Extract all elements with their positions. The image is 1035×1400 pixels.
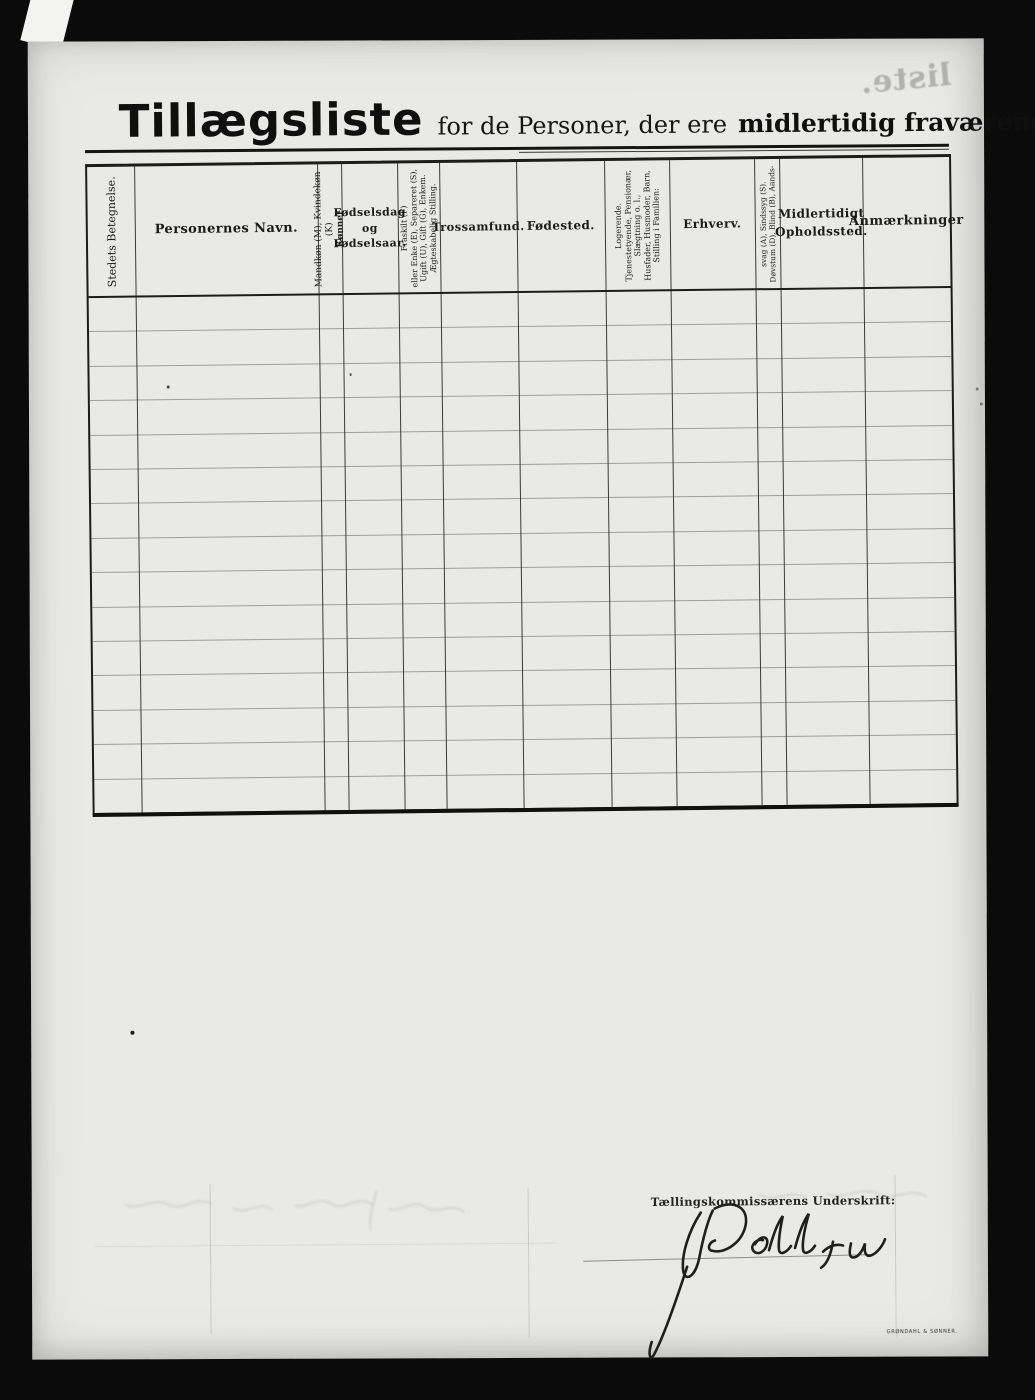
column-header-konnet: Mandkøn (M), Kvindekøn (K)Kønnet: [317, 164, 343, 293]
column-header-text: Personernes Navn.: [134, 164, 318, 295]
column-header-personernes-navn: Personernes Navn.: [134, 164, 318, 295]
census-table: Stedets Betegnelse.Personernes Navn.Mand…: [85, 154, 959, 815]
column-header-erhverv: Erhverv.: [669, 159, 756, 289]
header-line: Stedets Betegnelse.: [104, 169, 119, 293]
header-line: Fødselsaar.: [333, 236, 406, 253]
handwritten-signature: [637, 1195, 898, 1367]
ink-dot: [980, 403, 983, 406]
form-title-main: Tillægsliste: [119, 93, 424, 148]
form-sheet: liste. Tillægsliste for de Personer, der…: [28, 38, 989, 1359]
bleedthrough-grid-line: [528, 1188, 530, 1338]
header-line: Anmærkninger: [849, 212, 964, 232]
column-header-text: Erhverv.: [669, 159, 756, 289]
form-title-emphasis: midlertidig fraværende.: [738, 107, 1035, 138]
header-line: Erhverv.: [683, 215, 741, 233]
column-header-trossamfund: Trossamfund.: [439, 162, 518, 292]
header-line: og: [362, 220, 378, 236]
column-header-text: Trossamfund.: [439, 162, 518, 292]
header-line: Mandkøn (M), Kvindekøn (K): [313, 167, 336, 291]
ink-dot: [976, 388, 979, 391]
header-line: Trossamfund.: [432, 218, 525, 236]
ink-dot: [130, 1031, 134, 1035]
column-header-text: Fødested.: [516, 161, 606, 291]
sheet-content: liste. Tillægsliste for de Personer, der…: [26, 37, 992, 1362]
column-header-text: Anmærkninger: [862, 157, 951, 287]
form-title: Tillægsliste for de Personer, der ere mi…: [119, 88, 1035, 148]
column-header-text: FødselsdagogFødselsaar.: [341, 163, 399, 293]
header-line: Husfader, Husmoder, Barn,: [641, 163, 652, 287]
column-header-fodested: Fødested.: [516, 161, 606, 291]
header-line: Stilling i Familien:: [651, 163, 662, 287]
bleedthrough-handwriting-left: [93, 1182, 473, 1245]
column-header-fodselsdag: FødselsdagogFødselsaar.: [341, 163, 399, 293]
header-line: Personernes Navn.: [155, 220, 299, 241]
column-header-stilling-i-familien: Logerende.Tjenestetyende, Pensionær,Slæg…: [604, 160, 671, 290]
form-title-mid: for de Personer, der ere: [437, 110, 727, 140]
ink-dot: [167, 385, 170, 388]
column-header-text-vertical: Stedets Betegnelse.: [104, 169, 119, 293]
header-line: Fødested.: [527, 217, 595, 235]
header-line: Tjenestetyende, Pensionær,: [622, 163, 633, 287]
column-header-stedets-betegnelse: Stedets Betegnelse.: [87, 167, 136, 297]
header-line: Fødselsdag: [333, 204, 405, 221]
column-header-text-vertical: Logerende.Tjenestetyende, Pensionær,Slæg…: [613, 163, 662, 288]
column-header-anmaerkninger: Anmærkninger: [862, 157, 951, 287]
ink-dot: [350, 373, 352, 376]
